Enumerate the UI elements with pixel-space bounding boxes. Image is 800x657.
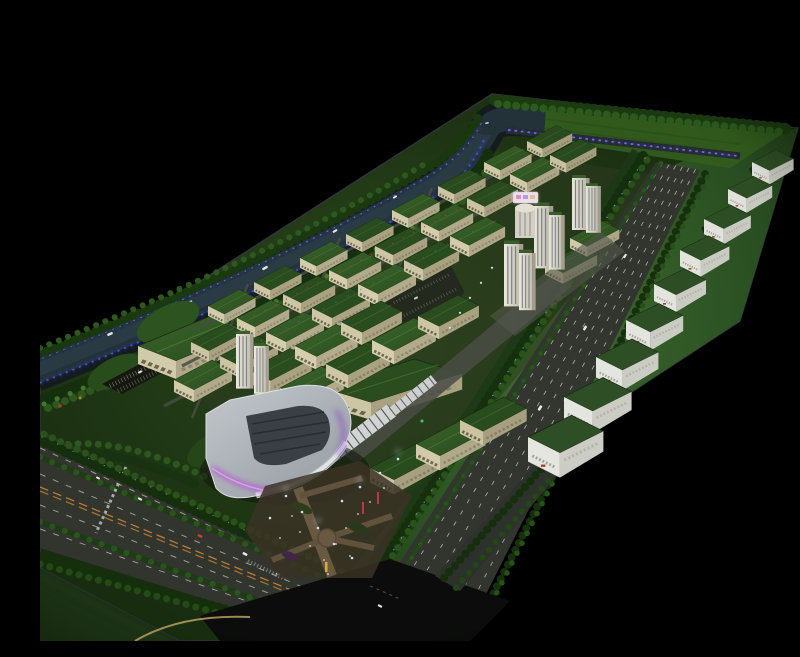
scale-model-photo: Physical scale model photographed from a…	[40, 16, 800, 641]
photo-vignette	[40, 16, 800, 641]
model-scene	[40, 16, 800, 641]
